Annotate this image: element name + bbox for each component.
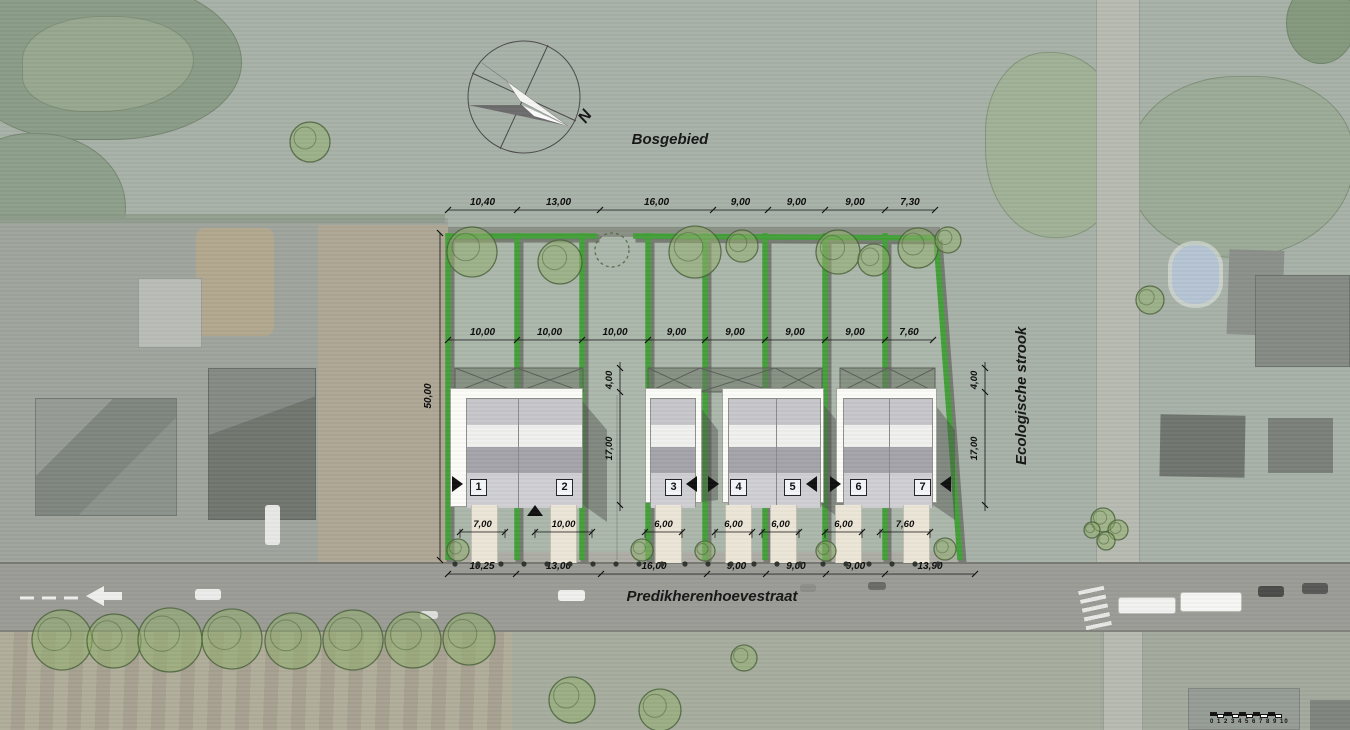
scale-bar-segment: [1253, 712, 1260, 716]
scale-bar-numbers: 0 1 2 3 4 5 6 7 8 9 10: [1210, 719, 1300, 725]
scale-bar-segment: [1260, 714, 1267, 718]
labels-layer: Bosgebied Predikherenhoevestraat Ecologi…: [0, 0, 1350, 730]
scale-bar-segment: [1268, 712, 1275, 716]
eco-strip-label: Ecologische strook: [1013, 327, 1030, 465]
scale-bar-segment: [1239, 712, 1246, 716]
scale-bar-segment: [1246, 714, 1253, 718]
street-name-label: Predikherenhoevestraat: [612, 588, 812, 605]
scale-bar: 0 1 2 3 4 5 6 7 8 9 10: [1210, 712, 1300, 728]
scale-bar-segment: [1224, 712, 1231, 716]
scale-bar-segment: [1275, 714, 1282, 718]
compass-rose-icon: [460, 33, 588, 161]
scale-bar-segment: [1217, 714, 1224, 718]
site-plan: 1 2 3 4 5 6 7 10,4013,0016,009,009,009,0…: [0, 0, 1350, 730]
area-label-bosgebied: Bosgebied: [605, 131, 735, 148]
scale-bar-segments: [1210, 712, 1288, 717]
scale-bar-segment: [1210, 712, 1217, 716]
scale-bar-segment: [1232, 714, 1239, 718]
